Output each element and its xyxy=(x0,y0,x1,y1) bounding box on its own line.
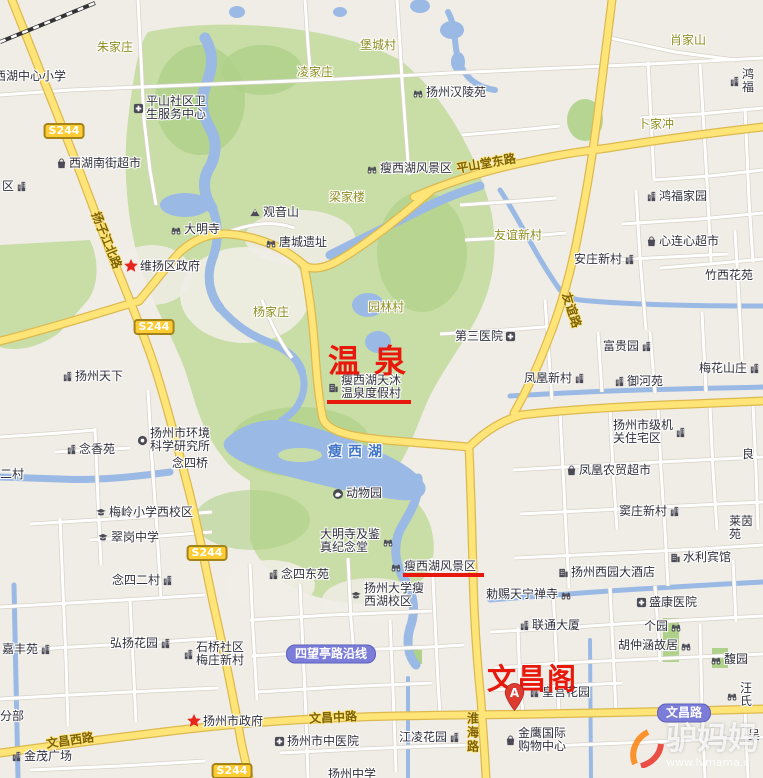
building-icon xyxy=(641,341,652,352)
village-label: 卜家冲 xyxy=(638,118,674,131)
poi-label[interactable]: 莱茵苑 xyxy=(729,515,763,541)
label-text: 扬州市政府 xyxy=(203,715,263,728)
label-text: 念四东苑 xyxy=(281,568,329,581)
label-text: 大明寺及鉴 真纪念堂 xyxy=(320,528,380,554)
village-label: 朱家庄 xyxy=(97,41,133,54)
hospital-icon xyxy=(133,103,144,114)
poi-label[interactable]: 勅赐天宁禅寺 xyxy=(486,588,572,601)
road-label: 文昌中路 xyxy=(309,707,358,726)
poi-label[interactable]: 维扬区政府 xyxy=(124,259,200,273)
star-icon xyxy=(124,259,138,273)
poi-label[interactable]: 梅花山庄 xyxy=(699,362,760,375)
mountain-icon xyxy=(249,207,261,218)
poi-label[interactable]: 良 xyxy=(742,448,754,461)
building-icon xyxy=(519,620,530,631)
hospital-icon xyxy=(636,597,647,608)
shop-icon xyxy=(505,735,516,746)
building-icon xyxy=(749,363,760,374)
label-text: 良 xyxy=(742,448,754,461)
hotel-icon xyxy=(558,567,569,578)
building-icon xyxy=(66,444,77,455)
label-text: 扬州市环境 科学研究所 xyxy=(150,427,210,453)
label-text: 平山社区卫 生服务中心 xyxy=(146,95,206,121)
label-text: 江凌花园 xyxy=(399,731,447,744)
poi-label[interactable]: 竹西花苑 xyxy=(705,269,753,282)
label-text: 弘扬花园 xyxy=(110,637,158,650)
poi-label[interactable]: 扬州市政府 xyxy=(187,714,263,728)
poi-label[interactable]: 瘦西湖风景区 xyxy=(366,162,452,175)
label-text: 扬州大学瘦 西湖校区 xyxy=(364,582,424,608)
poi-label[interactable]: 富贵园 xyxy=(603,340,652,353)
label-text: 大明寺 xyxy=(184,223,220,236)
scenic-icon xyxy=(382,536,394,547)
village-label: 梁家楼 xyxy=(329,191,365,204)
label-text: 嘉丰苑 xyxy=(2,643,38,656)
poi-label[interactable]: 念四东苑 xyxy=(268,568,329,581)
building-icon xyxy=(675,427,686,438)
label-text: 第三医院 xyxy=(455,330,503,343)
route-badge: S244 xyxy=(212,763,253,778)
poi-label[interactable]: 二村 xyxy=(0,468,24,481)
scenic-icon xyxy=(170,224,182,235)
poi-label[interactable]: 梅岭小学西校区 xyxy=(95,506,193,519)
marker-a[interactable]: A xyxy=(503,682,526,716)
road-name-badge: 文昌路 xyxy=(657,704,711,723)
road-label: 平山堂东路 xyxy=(455,149,517,176)
poi-label[interactable]: 凤凰农贸超市 xyxy=(566,464,651,477)
village-label: 杨家庄 xyxy=(253,306,289,319)
label-text: 瘦西湖风景区 xyxy=(380,162,452,175)
poi-label[interactable]: 扬州大学瘦 西湖校区 xyxy=(350,582,424,608)
label-text: 杨家庄 xyxy=(253,306,289,319)
poi-label[interactable]: 分部 xyxy=(0,710,24,723)
map-annotation: 文昌阁 xyxy=(487,656,577,698)
label-text: 莱茵苑 xyxy=(729,515,763,541)
building-icon xyxy=(183,649,194,660)
poi-label[interactable]: 个园 xyxy=(644,620,682,633)
label-text: 西湖南街超市 xyxy=(69,157,141,170)
poi-label[interactable]: 石桥社区 梅庄新村 xyxy=(183,641,244,667)
poi-label[interactable]: 金鹰国际 购物中心 xyxy=(505,727,566,753)
label-text: 金茂广场 xyxy=(24,750,72,763)
label-text: 勅赐天宁禅寺 xyxy=(486,588,558,601)
shop-icon xyxy=(56,158,67,169)
village-label: 堡城村 xyxy=(360,39,396,52)
poi-label[interactable]: 扬州西园大酒店 xyxy=(558,566,655,579)
label-text: 个园 xyxy=(644,620,668,633)
poi-label[interactable]: 盛康医院 xyxy=(636,596,697,609)
poi-label[interactable]: 胡仲涵故居 xyxy=(618,639,692,652)
route-badge: S244 xyxy=(187,545,228,561)
scenic-icon xyxy=(680,640,692,651)
label-text: 梅花山庄 xyxy=(699,362,747,375)
label-text: 梁家楼 xyxy=(329,191,365,204)
scenic-icon xyxy=(390,561,402,572)
annotation-underline xyxy=(327,400,411,404)
label-text: 胡仲涵故居 xyxy=(618,639,678,652)
label-text: 凤凰新村 xyxy=(524,372,572,385)
scenic-icon xyxy=(670,621,682,632)
label-text: 馥园 xyxy=(724,653,748,666)
poi-label[interactable]: 念四桥 xyxy=(172,457,208,470)
label-text: 富贵园 xyxy=(603,340,639,353)
building-icon xyxy=(268,569,279,580)
poi-label[interactable]: 念香苑 xyxy=(66,443,115,456)
poi-label[interactable]: 西湖南街超市 xyxy=(56,157,141,170)
star-icon xyxy=(187,714,201,728)
label-text: 鸿福家园 xyxy=(659,190,707,203)
building-icon xyxy=(162,575,173,586)
poi-label[interactable]: 西湖中心小学 xyxy=(0,70,66,83)
label-text: 竹西花苑 xyxy=(705,269,753,282)
poi-label[interactable]: 唐城遗址 xyxy=(265,236,327,249)
label-text: 堡城村 xyxy=(360,39,396,52)
poi-label[interactable]: 动物园 xyxy=(332,487,382,500)
label-text: 吴 xyxy=(748,729,760,742)
scenic-icon xyxy=(265,237,277,248)
building-icon xyxy=(646,191,657,202)
poi-label[interactable]: 汪氏 xyxy=(726,682,763,708)
building-icon xyxy=(574,373,585,384)
label-text: 窦庄新村 xyxy=(619,505,667,518)
label-text: 动物园 xyxy=(346,487,382,500)
label-text: 扬州西园大酒店 xyxy=(571,566,655,579)
label-text: 翠岗中学 xyxy=(111,531,159,544)
label-text: 园林村 xyxy=(368,301,404,314)
label-text: 瘦西湖风景区 xyxy=(404,560,476,573)
building-icon xyxy=(160,638,171,649)
poi-label[interactable]: 凤凰新村 xyxy=(524,372,585,385)
label-text: 维扬区政府 xyxy=(140,260,200,273)
building-icon xyxy=(40,644,51,655)
label-text: 区 xyxy=(2,180,14,193)
hotel-icon xyxy=(670,552,681,563)
poi-label[interactable]: 馥园 xyxy=(710,653,748,666)
poi-label[interactable]: 金茂广场 xyxy=(11,750,72,763)
label-text: 朱家庄 xyxy=(97,41,133,54)
label-text: 御河苑 xyxy=(627,375,663,388)
map-labels: 朱家庄堡城村凌家庄肖家山卜家冲梁家楼杨家庄园林村友谊新村西湖中心小学平山社区卫 … xyxy=(0,0,763,778)
poi-label[interactable]: 区 xyxy=(2,180,27,193)
village-label: 园林村 xyxy=(368,301,404,314)
poi-label[interactable]: 扬州天下 xyxy=(62,370,123,383)
poi-label[interactable]: 御河苑 xyxy=(614,375,663,388)
road-label: 淮海路 xyxy=(465,712,482,754)
poi-label[interactable]: 鸿福家园 xyxy=(646,190,707,203)
scenic-icon xyxy=(366,163,378,174)
poi-label[interactable]: 念四二村 xyxy=(112,574,173,587)
poi-label[interactable]: 鸿福 xyxy=(729,68,763,94)
poi-label[interactable]: 扬州汉陵苑 xyxy=(412,86,486,99)
label-text: 安庄新村 xyxy=(574,253,622,266)
hospital-icon xyxy=(274,736,285,747)
label-text: 肖家山 xyxy=(670,34,706,47)
map-annotation: 温泉 xyxy=(328,336,420,382)
building-icon xyxy=(729,76,740,87)
label-text: 鸿福 xyxy=(742,68,763,94)
map-root[interactable]: 朱家庄堡城村凌家庄肖家山卜家冲梁家楼杨家庄园林村友谊新村西湖中心小学平山社区卫 … xyxy=(0,0,763,778)
shop-icon xyxy=(566,465,577,476)
hospital-icon xyxy=(505,331,516,342)
building-icon xyxy=(624,254,635,265)
label-text: 凤凰农贸超市 xyxy=(579,464,651,477)
building-icon xyxy=(614,376,625,387)
poi-label[interactable]: 嘉丰苑 xyxy=(2,643,51,656)
scenic-icon xyxy=(560,589,572,600)
school-icon xyxy=(97,532,109,543)
label-text: 扬州天下 xyxy=(75,370,123,383)
road-label: 扬子江北路 xyxy=(88,209,126,271)
scenic-icon xyxy=(710,654,722,665)
label-text: 分部 xyxy=(0,710,24,723)
building-icon xyxy=(16,181,27,192)
building-icon xyxy=(449,732,460,743)
label-text: 念四二村 xyxy=(112,574,160,587)
poi-label[interactable]: 扬州市中医院 xyxy=(274,735,359,748)
poi-label[interactable]: 瘦西湖风景区 xyxy=(390,560,476,573)
label-text: 西湖中心小学 xyxy=(0,70,66,83)
poi-label[interactable]: 弘扬花园 xyxy=(110,637,171,650)
poi-label[interactable]: 扬州市级机 关住宅区 xyxy=(613,419,686,445)
label-text: 瘦西湖 xyxy=(328,446,388,459)
label-text: 卜家冲 xyxy=(638,118,674,131)
lake-label: 瘦西湖 xyxy=(328,446,388,459)
village-label: 凌家庄 xyxy=(297,66,333,79)
scenic-icon xyxy=(412,87,424,98)
label-text: 汪氏 xyxy=(740,682,763,708)
shop-icon xyxy=(646,236,657,247)
school-icon xyxy=(350,590,362,601)
label-text: 扬州市中医院 xyxy=(287,735,359,748)
hotel-icon xyxy=(328,382,339,393)
label-text: 观音山 xyxy=(263,206,299,219)
scenic-icon xyxy=(726,690,738,701)
road-label: 文昌西路 xyxy=(45,728,95,752)
annotation-underline xyxy=(403,573,484,577)
label-text: 念香苑 xyxy=(79,443,115,456)
svg-text:A: A xyxy=(510,686,520,700)
label-text: 友谊新村 xyxy=(494,229,542,242)
road-label: 友谊路 xyxy=(558,290,585,330)
zoo-icon xyxy=(332,488,344,500)
label-text: 扬州中学 xyxy=(328,768,376,778)
poi-label[interactable]: 心连心超市 xyxy=(646,235,719,248)
poi-label[interactable]: 江凌花园 xyxy=(399,731,460,744)
poi-label[interactable]: 大明寺及鉴 真纪念堂 xyxy=(320,528,394,554)
institute-icon xyxy=(137,435,148,446)
poi-label[interactable]: 安庄新村 xyxy=(574,253,635,266)
poi-label[interactable]: 吴 xyxy=(748,729,760,742)
poi-label[interactable]: 联通大厦 xyxy=(519,619,580,632)
poi-label[interactable]: 第三医院 xyxy=(455,330,516,343)
label-text: 梅岭小学西校区 xyxy=(109,506,193,519)
label-text: 联通大厦 xyxy=(532,619,580,632)
building-icon xyxy=(11,751,22,762)
village-label: 友谊新村 xyxy=(494,229,542,242)
poi-label[interactable]: 观音山 xyxy=(249,206,299,219)
label-text: 盛康医院 xyxy=(649,596,697,609)
route-badge: S244 xyxy=(44,123,85,139)
poi-label[interactable]: 扬州市环境 科学研究所 xyxy=(137,427,210,453)
label-text: 念四桥 xyxy=(172,457,208,470)
label-text: 水利宾馆 xyxy=(683,551,731,564)
school-icon xyxy=(95,507,107,518)
label-text: 二村 xyxy=(0,468,24,481)
route-badge: S244 xyxy=(134,319,175,335)
building-icon xyxy=(669,506,680,517)
poi-label[interactable]: 大明寺 xyxy=(170,223,220,236)
poi-label[interactable]: 水利宾馆 xyxy=(670,551,731,564)
road-name-badge: 四望亭路沿线 xyxy=(286,645,376,664)
poi-label[interactable]: 平山社区卫 生服务中心 xyxy=(133,95,206,121)
poi-label[interactable]: 翠岗中学 xyxy=(97,531,159,544)
building-icon xyxy=(62,371,73,382)
label-text: 石桥社区 梅庄新村 xyxy=(196,641,244,667)
poi-label[interactable]: 窦庄新村 xyxy=(619,505,680,518)
village-label: 肖家山 xyxy=(670,34,706,47)
label-text: 金鹰国际 购物中心 xyxy=(518,727,566,753)
label-text: 扬州汉陵苑 xyxy=(426,86,486,99)
label-text: 扬州市级机 关住宅区 xyxy=(613,419,673,445)
label-text: 心连心超市 xyxy=(659,235,719,248)
poi-label[interactable]: 扬州中学 xyxy=(328,768,376,778)
label-text: 唐城遗址 xyxy=(279,236,327,249)
label-text: 凌家庄 xyxy=(297,66,333,79)
